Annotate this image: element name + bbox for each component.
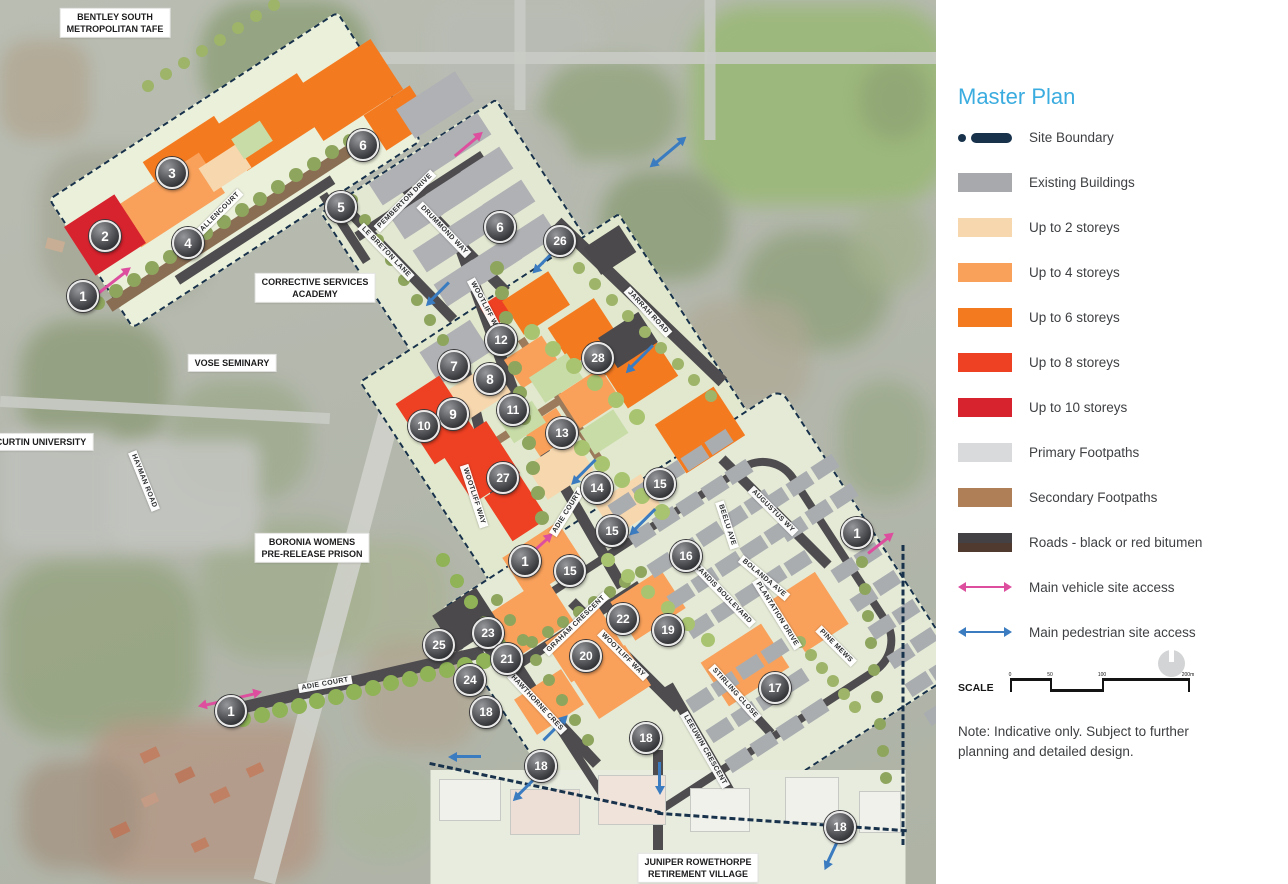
- map-marker-1: 1: [509, 545, 541, 577]
- tree: [859, 583, 871, 595]
- tree: [307, 157, 321, 171]
- tree: [827, 675, 839, 687]
- tree: [499, 311, 513, 325]
- tree: [436, 553, 450, 567]
- tree: [250, 10, 262, 22]
- legend-item-storeys-2: Up to 2 storeys: [958, 218, 1202, 237]
- tree: [178, 57, 190, 69]
- aerial-texture: [380, 52, 936, 64]
- tree: [411, 294, 423, 306]
- map-marker-18: 18: [525, 750, 557, 782]
- pedestrian-access-swatch: [958, 623, 1012, 642]
- legend-item-existing-buildings: Existing Buildings: [958, 173, 1202, 192]
- arrow-head: [958, 582, 966, 592]
- scale-tick-label: 0: [1009, 672, 1012, 678]
- legend-item-storeys-8: Up to 8 storeys: [958, 353, 1202, 372]
- tree: [545, 341, 561, 357]
- tree: [232, 22, 244, 34]
- map-marker-24: 24: [454, 664, 486, 696]
- aerial-texture: [0, 40, 90, 140]
- tree: [641, 585, 655, 599]
- map-marker-15: 15: [596, 515, 628, 547]
- tree: [531, 486, 545, 500]
- tree: [629, 409, 645, 425]
- vehicle-access-arrow: [958, 582, 1012, 592]
- tree: [450, 574, 464, 588]
- boundary-dot: [958, 134, 966, 142]
- legend-item-label: Main pedestrian site access: [1029, 625, 1196, 640]
- map-marker-28: 28: [582, 342, 614, 374]
- aerial-texture: [515, 0, 526, 110]
- site-boundary-swatch: [958, 128, 1012, 147]
- tree: [601, 553, 615, 567]
- map-marker-6: 6: [484, 211, 516, 243]
- map-marker-18: 18: [824, 811, 856, 843]
- tree: [271, 180, 285, 194]
- north-indicator-icon: [1158, 650, 1185, 677]
- scale-bar-graphic: 050100200m: [1010, 672, 1190, 698]
- tree: [495, 286, 509, 300]
- arrow-head: [958, 627, 966, 637]
- tree: [877, 745, 889, 757]
- scale-bar: SCALE 050100200m: [958, 672, 1258, 702]
- vehicle-access-swatch: [958, 578, 1012, 597]
- tree: [622, 310, 634, 322]
- scale-tick: [1010, 678, 1012, 692]
- tree: [621, 569, 635, 583]
- tree: [524, 324, 540, 340]
- legend-item-storeys-10: Up to 10 storeys: [958, 398, 1202, 417]
- place-label: BENTLEY SOUTHMETROPOLITAN TAFE: [61, 9, 170, 37]
- legend-item-label: Roads - black or red bitumen: [1029, 535, 1202, 550]
- legend-item-label: Secondary Footpaths: [1029, 490, 1157, 505]
- place-label: CORRECTIVE SERVICESACADEMY: [256, 274, 375, 302]
- map-marker-25: 25: [423, 629, 455, 661]
- place-label: CURTIN UNIVERSITY: [0, 434, 92, 450]
- building: [923, 699, 936, 725]
- tree: [849, 701, 861, 713]
- tree: [635, 566, 647, 578]
- tree: [865, 637, 877, 649]
- map-marker-8: 8: [474, 363, 506, 395]
- building: [690, 788, 750, 832]
- master-plan-page: ALLENCOURTPEMBERTON DRIVEDRUMMOND WAYLE …: [0, 0, 1288, 884]
- existing-buildings-swatch: [958, 173, 1012, 192]
- tree: [491, 594, 503, 606]
- scale-tick: [1102, 678, 1104, 692]
- map-marker-26: 26: [544, 225, 576, 257]
- map-marker-5: 5: [325, 191, 357, 223]
- map-marker-15: 15: [554, 555, 586, 587]
- aerial-texture: [705, 0, 716, 140]
- map-marker-6: 6: [347, 129, 379, 161]
- aerial-texture: [840, 380, 930, 500]
- pedestrian-access-arrow: [655, 755, 665, 795]
- tree: [862, 610, 874, 622]
- primary-footpaths-swatch: [958, 443, 1012, 462]
- tree: [508, 361, 522, 375]
- tree: [490, 261, 504, 275]
- tree: [705, 390, 717, 402]
- tree: [142, 80, 154, 92]
- tree: [880, 772, 892, 784]
- legend-panel: Master Plan Site BoundaryExisting Buildi…: [936, 0, 1288, 884]
- legend-items: Site BoundaryExisting BuildingsUp to 2 s…: [958, 128, 1202, 642]
- place-label: JUNIPER ROWETHORPERETIREMENT VILLAGE: [638, 854, 757, 882]
- legend-item-pedestrian-access: Main pedestrian site access: [958, 623, 1202, 642]
- tree: [160, 68, 172, 80]
- scale-segment: [1010, 678, 1050, 681]
- tree: [254, 707, 270, 723]
- storeys-10-swatch: [958, 398, 1012, 417]
- legend-item-label: Up to 2 storeys: [1029, 220, 1120, 235]
- tree: [688, 374, 700, 386]
- legend-item-label: Primary Footpaths: [1029, 445, 1139, 460]
- tree: [253, 192, 267, 206]
- arrow-head: [448, 752, 457, 762]
- legend-item-label: Up to 6 storeys: [1029, 310, 1120, 325]
- legend-item-storeys-4: Up to 4 storeys: [958, 263, 1202, 282]
- tree: [701, 633, 715, 647]
- legend-item-vehicle-access: Main vehicle site access: [958, 578, 1202, 597]
- tree: [420, 666, 436, 682]
- tree: [566, 358, 582, 374]
- map-marker-2: 2: [89, 220, 121, 252]
- scale-segment: [1050, 689, 1102, 692]
- map-marker-18: 18: [470, 696, 502, 728]
- tree: [816, 662, 828, 674]
- tree: [439, 662, 455, 678]
- map-marker-11: 11: [497, 394, 529, 426]
- secondary-footpaths-swatch: [958, 488, 1012, 507]
- site-boundary-line: [902, 545, 905, 845]
- legend-item-primary-footpaths: Primary Footpaths: [958, 443, 1202, 462]
- legend-item-secondary-footpaths: Secondary Footpaths: [958, 488, 1202, 507]
- map-marker-14: 14: [581, 472, 613, 504]
- place-label: VOSE SEMINARY: [189, 355, 276, 371]
- tree: [582, 734, 594, 746]
- tree: [661, 601, 675, 615]
- note-text: Note: Indicative only. Subject to furthe…: [958, 722, 1228, 761]
- roads-swatch: [958, 533, 1012, 552]
- tree: [805, 649, 817, 661]
- tree: [573, 262, 585, 274]
- map-marker-4: 4: [172, 227, 204, 259]
- scale-tick-label: 200m: [1182, 672, 1195, 678]
- arrow-head: [655, 786, 665, 795]
- tree: [589, 278, 601, 290]
- aerial-texture: [20, 760, 140, 870]
- legend-item-storeys-6: Up to 6 storeys: [958, 308, 1202, 327]
- tree: [365, 680, 381, 696]
- tree: [606, 294, 618, 306]
- tree: [504, 614, 516, 626]
- map-marker-27: 27: [487, 462, 519, 494]
- map-marker-20: 20: [570, 640, 602, 672]
- legend-item-label: Up to 10 storeys: [1029, 400, 1127, 415]
- master-plan-map: ALLENCOURTPEMBERTON DRIVEDRUMMOND WAYLE …: [0, 0, 936, 884]
- map-marker-10: 10: [408, 410, 440, 442]
- scale-tick: [1050, 678, 1052, 692]
- tree: [874, 718, 886, 730]
- scale-tick-label: 100: [1098, 672, 1106, 678]
- scale-segment: [1102, 678, 1188, 681]
- arrow-head: [1004, 627, 1012, 637]
- tree: [543, 674, 555, 686]
- map-marker-7: 7: [438, 350, 470, 382]
- boundary-dash: [971, 133, 1012, 143]
- map-marker-18: 18: [630, 722, 662, 754]
- tree: [424, 314, 436, 326]
- tree: [587, 375, 603, 391]
- tree: [235, 203, 249, 217]
- map-marker-15: 15: [644, 468, 676, 500]
- aerial-texture: [330, 760, 440, 860]
- storeys-8-swatch: [958, 353, 1012, 372]
- tree: [569, 714, 581, 726]
- tree: [325, 145, 339, 159]
- scale-label: SCALE: [958, 682, 994, 694]
- arrow-bar: [659, 762, 662, 788]
- tree: [522, 436, 536, 450]
- tree: [838, 688, 850, 700]
- tree: [639, 326, 651, 338]
- tree: [402, 671, 418, 687]
- legend-title: Master Plan: [958, 84, 1075, 110]
- map-marker-1: 1: [215, 695, 247, 727]
- map-marker-1: 1: [67, 280, 99, 312]
- map-marker-22: 22: [607, 603, 639, 635]
- pedestrian-access-arrow: [958, 627, 1012, 637]
- tree: [309, 693, 325, 709]
- map-marker-13: 13: [546, 417, 578, 449]
- tree: [574, 440, 590, 456]
- legend-item-label: Up to 8 storeys: [1029, 355, 1120, 370]
- building: [439, 779, 501, 821]
- aerial-texture: [860, 60, 930, 140]
- tree: [291, 698, 307, 714]
- aerial-texture: [850, 200, 930, 290]
- arrow-bar: [455, 756, 481, 759]
- tree: [214, 34, 226, 46]
- tree: [614, 472, 630, 488]
- legend-item-site-boundary: Site Boundary: [958, 128, 1202, 147]
- tree: [346, 684, 362, 700]
- storeys-2-swatch: [958, 218, 1012, 237]
- map-marker-16: 16: [670, 540, 702, 572]
- tree: [526, 636, 538, 648]
- tree: [437, 334, 449, 346]
- tree: [328, 689, 344, 705]
- tree: [289, 168, 303, 182]
- map-marker-17: 17: [759, 672, 791, 704]
- arrow-head: [197, 700, 208, 712]
- legend-item-label: Site Boundary: [1029, 130, 1114, 145]
- tree: [542, 626, 554, 638]
- legend-item-roads: Roads - black or red bitumen: [958, 533, 1202, 552]
- tree: [272, 702, 288, 718]
- legend-item-label: Existing Buildings: [1029, 175, 1135, 190]
- place-label: BORONIA WOMENSPRE-RELEASE PRISON: [255, 534, 368, 562]
- scale-tick-label: 50: [1047, 672, 1053, 678]
- map-marker-12: 12: [485, 324, 517, 356]
- tree: [383, 675, 399, 691]
- tree: [535, 511, 549, 525]
- tree: [196, 45, 208, 57]
- tree: [868, 664, 880, 676]
- map-marker-9: 9: [437, 398, 469, 430]
- pedestrian-access-arrow: [448, 752, 488, 762]
- tree: [608, 392, 624, 408]
- arrow-head: [252, 687, 263, 699]
- tree: [526, 461, 540, 475]
- tree: [530, 654, 542, 666]
- arrow-head: [1004, 582, 1012, 592]
- arrow-bar: [965, 631, 1005, 634]
- aerial-texture: [0, 560, 200, 740]
- legend-item-label: Up to 4 storeys: [1029, 265, 1120, 280]
- tree: [871, 691, 883, 703]
- scale-tick: [1188, 678, 1190, 692]
- tree: [145, 261, 159, 275]
- tree: [672, 358, 684, 370]
- map-marker-19: 19: [652, 614, 684, 646]
- legend-item-label: Main vehicle site access: [1029, 580, 1175, 595]
- storeys-4-swatch: [958, 263, 1012, 282]
- tree: [464, 595, 478, 609]
- arrow-bar: [965, 586, 1005, 589]
- map-marker-21: 21: [491, 643, 523, 675]
- storeys-6-swatch: [958, 308, 1012, 327]
- map-marker-3: 3: [156, 157, 188, 189]
- tree: [556, 694, 568, 706]
- map-marker-1: 1: [841, 517, 873, 549]
